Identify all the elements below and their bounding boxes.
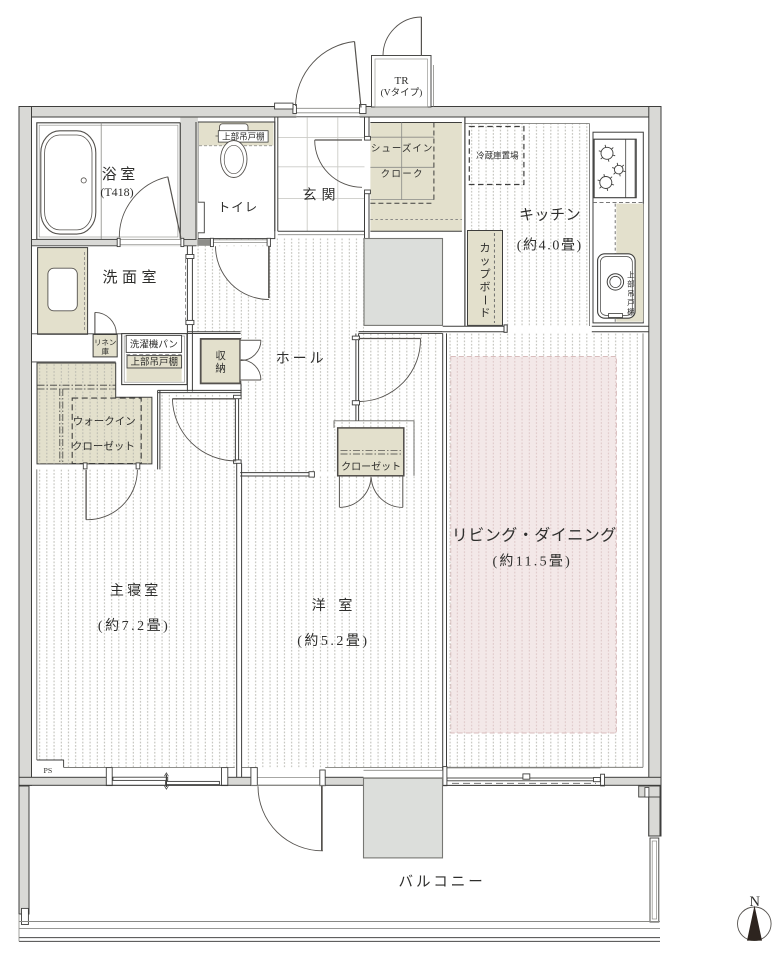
- svg-text:(約4.0畳): (約4.0畳): [517, 237, 583, 253]
- svg-text:冷蔵庫置場: 冷蔵庫置場: [476, 151, 519, 161]
- svg-text:クローゼット: クローゼット: [72, 441, 135, 453]
- svg-text:プ: プ: [480, 268, 491, 281]
- svg-text:キッチン: キッチン: [519, 207, 581, 223]
- svg-text:ウォークイン: ウォークイン: [73, 416, 136, 428]
- svg-text:TR: TR: [394, 75, 409, 87]
- svg-text:(約11.5畳): (約11.5畳): [492, 553, 572, 569]
- svg-text:上部吊戸棚: 上部吊戸棚: [222, 132, 265, 142]
- svg-text:ド: ド: [480, 308, 491, 320]
- svg-text:バルコニー: バルコニー: [398, 875, 485, 891]
- svg-text:カ: カ: [480, 242, 491, 255]
- svg-text:クローク: クローク: [381, 169, 424, 180]
- svg-text:収: 収: [215, 350, 226, 362]
- svg-text:ホール: ホール: [276, 352, 327, 367]
- svg-text:上部吊戸棚: 上部吊戸棚: [131, 356, 179, 368]
- svg-text:リネン: リネン: [94, 338, 117, 347]
- svg-text:浴室: 浴室: [102, 166, 139, 183]
- svg-text:棚: 棚: [627, 306, 635, 316]
- svg-text:ー: ー: [479, 295, 491, 306]
- svg-text:(T418): (T418): [100, 185, 133, 199]
- svg-text:シューズイン: シューズイン: [371, 142, 434, 154]
- svg-text:主寝室: 主寝室: [110, 582, 162, 599]
- svg-text:洋室: 洋室: [312, 597, 366, 614]
- svg-text:玄関: 玄関: [303, 187, 341, 204]
- svg-text:上: 上: [627, 271, 635, 280]
- svg-text:クローゼット: クローゼット: [341, 461, 401, 473]
- svg-text:PS: PS: [44, 766, 53, 775]
- svg-text:洗濯機パン: 洗濯機パン: [130, 338, 178, 350]
- svg-text:戸: 戸: [627, 298, 635, 307]
- svg-text:吊: 吊: [627, 289, 635, 298]
- svg-text:(Vタイプ): (Vタイプ): [381, 88, 423, 99]
- svg-text:ッ: ッ: [480, 256, 491, 268]
- svg-text:洗面室: 洗面室: [102, 269, 161, 286]
- svg-text:(約7.2畳): (約7.2畳): [98, 618, 170, 634]
- svg-text:トイレ: トイレ: [218, 201, 259, 215]
- svg-text:(約5.2畳): (約5.2畳): [297, 633, 369, 649]
- svg-text:部: 部: [627, 279, 635, 289]
- svg-text:リビング・ダイニング: リビング・ダイニング: [452, 527, 617, 545]
- svg-text:ボ: ボ: [480, 281, 491, 294]
- svg-text:N: N: [750, 894, 761, 910]
- svg-text:納: 納: [215, 362, 226, 375]
- svg-text:庫: 庫: [101, 346, 109, 356]
